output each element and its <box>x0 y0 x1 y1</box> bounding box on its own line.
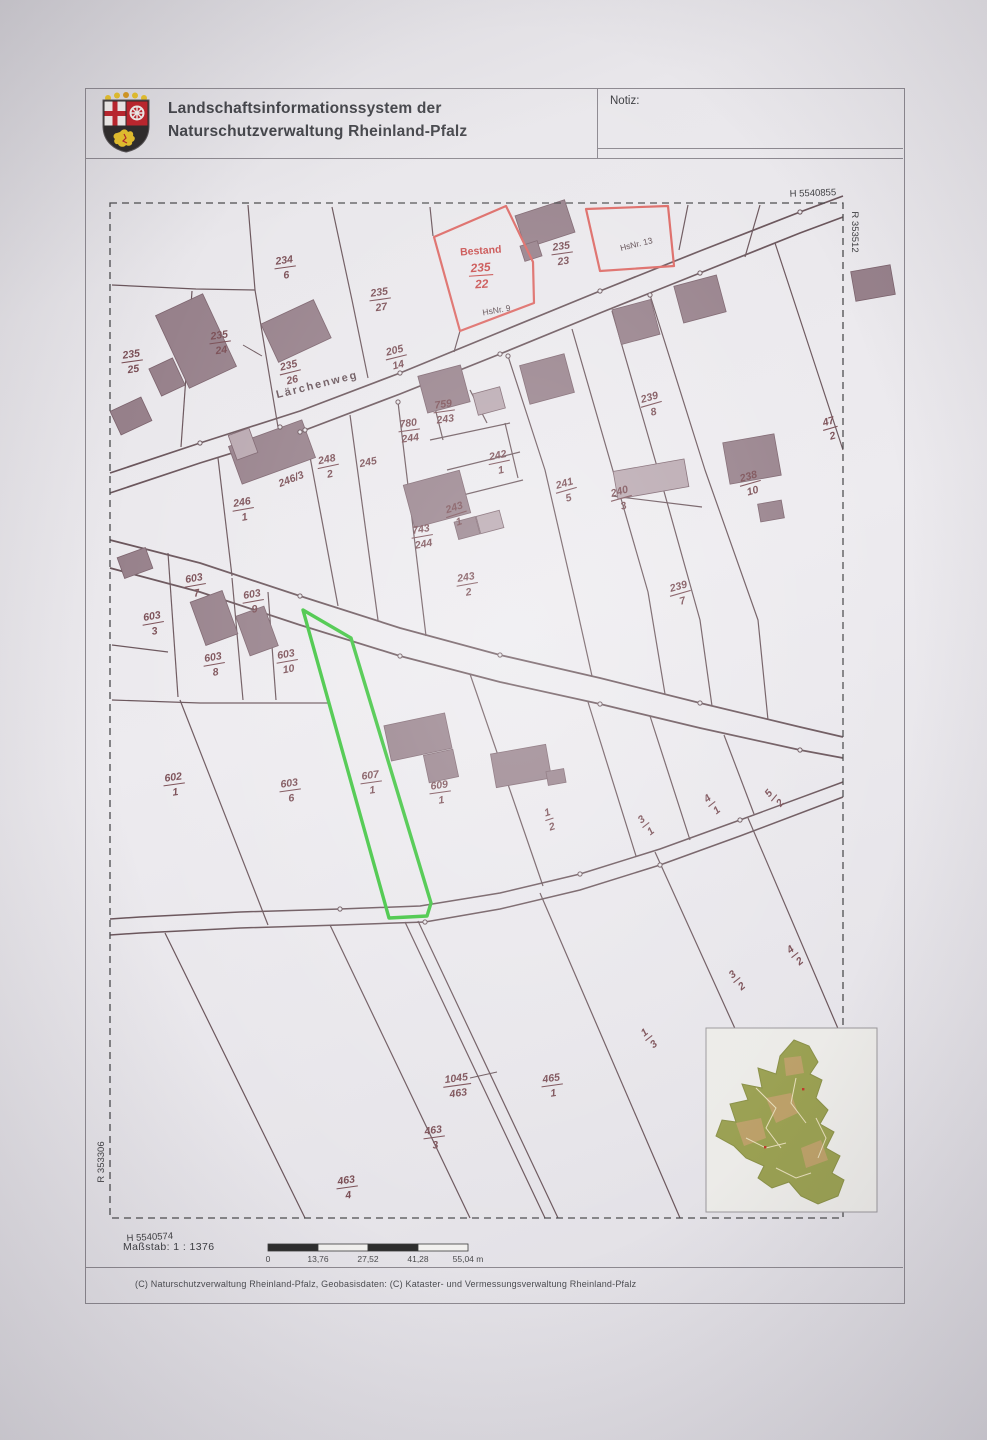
parcel-boundary <box>572 329 665 694</box>
svg-text:602: 602 <box>164 770 183 784</box>
survey-point <box>658 863 662 867</box>
scanned-map-sheet: Landschaftsinformationssystem der Naturs… <box>0 0 987 1440</box>
parcel-boundary <box>218 458 232 576</box>
parcel-label: 12 <box>541 806 557 834</box>
parcel-label: 6036 <box>278 776 303 806</box>
survey-point <box>423 920 427 924</box>
parcel-boundary <box>180 700 268 925</box>
building-footprint <box>520 354 575 405</box>
parcel-boundary <box>112 645 168 652</box>
map-annotation: HsNr. 13 <box>619 235 654 253</box>
survey-point <box>598 702 602 706</box>
parcel-label: 23522 <box>468 260 494 292</box>
svg-text:8: 8 <box>212 666 220 679</box>
parcel-label: 32 <box>726 967 749 994</box>
svg-text:759: 759 <box>434 397 453 411</box>
svg-text:1: 1 <box>543 806 552 819</box>
red-highlight-parcel <box>586 206 674 271</box>
scale-tick-label: 0 <box>266 1254 271 1264</box>
scale-tick-label: 27,52 <box>357 1254 379 1264</box>
survey-point <box>303 428 307 432</box>
parcel-boundary <box>650 295 768 720</box>
parcel-label: 2461 <box>230 495 256 525</box>
parcel-label: 245 <box>357 455 378 471</box>
svg-text:235: 235 <box>209 328 229 342</box>
parcel-boundary <box>650 716 690 840</box>
svg-text:2: 2 <box>735 980 748 994</box>
svg-text:9: 9 <box>251 603 259 616</box>
parcel-label: 4634 <box>335 1173 360 1203</box>
scale-tick-label: 55,04 m <box>453 1254 484 1264</box>
svg-text:235: 235 <box>369 285 389 299</box>
parcel-boundary <box>405 922 545 1218</box>
parcel-label: 2482 <box>315 452 342 483</box>
parcel-label: 2397 <box>666 578 694 610</box>
parcel-boundary <box>724 735 754 814</box>
svg-text:3: 3 <box>636 813 648 826</box>
parcel-label: 13 <box>638 1025 661 1052</box>
parcel-boundary <box>430 207 433 236</box>
svg-text:1: 1 <box>438 794 446 807</box>
frame-coordinate-label: H 5540855 <box>789 187 836 200</box>
parcel-boundary <box>168 553 178 697</box>
survey-point <box>798 748 802 752</box>
parcel-label: 23527 <box>368 285 393 315</box>
parcel-boundary <box>243 345 262 356</box>
svg-text:235: 235 <box>551 239 571 253</box>
svg-text:10: 10 <box>745 484 760 499</box>
svg-text:463: 463 <box>448 1086 468 1100</box>
svg-text:2: 2 <box>325 468 334 481</box>
parcel-boundary <box>679 205 688 250</box>
survey-point <box>648 293 652 297</box>
building-footprint <box>490 744 551 787</box>
svg-text:609: 609 <box>430 778 449 792</box>
svg-text:6: 6 <box>288 792 296 805</box>
svg-text:465: 465 <box>541 1071 561 1085</box>
parcel-boundary <box>447 452 520 470</box>
survey-point <box>738 818 742 822</box>
parcel-label: 6071 <box>359 768 384 798</box>
parcel-boundary <box>112 285 255 290</box>
parcel-label: 60310 <box>274 647 300 677</box>
svg-text:245: 245 <box>357 455 378 471</box>
svg-text:1: 1 <box>369 784 377 797</box>
svg-text:27: 27 <box>374 300 389 314</box>
survey-point <box>198 441 202 445</box>
svg-text:603: 603 <box>242 587 261 602</box>
parcel-boundary <box>110 797 843 935</box>
scale-tick-label: 13,76 <box>307 1254 329 1264</box>
parcel-label: 23525 <box>120 347 145 377</box>
svg-text:243: 243 <box>435 412 455 426</box>
svg-text:244: 244 <box>400 431 420 445</box>
parcel-label: 246/3 <box>276 469 306 490</box>
svg-text:3: 3 <box>432 1139 440 1152</box>
svg-text:24: 24 <box>214 344 228 358</box>
scale-tick-label: 41,28 <box>407 1254 429 1264</box>
svg-text:603: 603 <box>280 776 299 790</box>
parcel-label: 31 <box>635 812 658 839</box>
svg-text:2: 2 <box>546 820 556 834</box>
survey-point <box>396 400 400 404</box>
svg-text:603: 603 <box>142 609 161 624</box>
svg-text:25: 25 <box>126 363 140 377</box>
survey-point <box>398 371 402 375</box>
svg-text:4: 4 <box>344 1189 353 1202</box>
parcel-label: 1045463 <box>442 1071 474 1102</box>
svg-text:780: 780 <box>399 416 418 430</box>
map-annotation: Bestand <box>460 244 502 259</box>
parcel-label: 472 <box>820 414 842 444</box>
survey-point <box>298 430 302 434</box>
svg-text:2: 2 <box>793 955 806 969</box>
parcel-boundary <box>350 415 378 620</box>
parcel-boundary <box>248 205 278 427</box>
svg-text:23: 23 <box>556 255 570 269</box>
survey-point <box>506 354 510 358</box>
building-footprint <box>546 769 566 786</box>
building-footprint <box>758 500 785 522</box>
svg-text:603: 603 <box>203 650 222 665</box>
parcel-boundary <box>508 356 592 676</box>
svg-text:463: 463 <box>423 1123 443 1137</box>
svg-text:7: 7 <box>678 594 688 607</box>
green-highlight-parcel <box>303 610 431 918</box>
svg-text:463: 463 <box>336 1173 356 1187</box>
svg-text:2: 2 <box>773 797 787 810</box>
building-footprint <box>110 397 152 435</box>
parcel-label: 6037 <box>182 571 208 601</box>
svg-text:603: 603 <box>184 571 203 586</box>
parcel-label: 6021 <box>162 770 187 800</box>
svg-text:246/3: 246/3 <box>276 469 306 490</box>
frame-coordinate-label: R 353306 <box>96 1141 107 1182</box>
svg-text:22: 22 <box>474 277 490 292</box>
parcel-label: 20514 <box>383 342 410 373</box>
survey-point <box>698 701 702 705</box>
cadastral-map: 2346235272352223523235242352523526205147… <box>0 0 987 1440</box>
parcel-boundary <box>505 423 518 478</box>
parcel-label: 2432 <box>454 570 480 600</box>
parcel-label: 6033 <box>140 609 166 639</box>
svg-text:235: 235 <box>121 347 141 361</box>
survey-point <box>798 210 802 214</box>
building-footprint <box>851 265 896 301</box>
svg-text:2: 2 <box>827 430 837 443</box>
svg-text:1: 1 <box>241 511 249 524</box>
frame-coordinate-label: R 353512 <box>849 211 860 252</box>
svg-text:603: 603 <box>276 647 295 662</box>
parcel-label: 4651 <box>540 1071 565 1101</box>
svg-text:3: 3 <box>648 1038 660 1051</box>
building-footprint <box>423 749 458 783</box>
building-footprint <box>261 300 331 363</box>
parcel-boundary <box>418 921 558 1218</box>
survey-point <box>498 653 502 657</box>
svg-text:5: 5 <box>762 787 775 799</box>
parcel-label: 2415 <box>552 475 580 507</box>
survey-point <box>598 289 602 293</box>
parcel-label: 2346 <box>273 253 298 283</box>
map-annotation: HsNr. 9 <box>482 303 512 318</box>
parcel-boundary <box>588 702 636 856</box>
svg-text:1: 1 <box>172 786 180 799</box>
svg-text:3: 3 <box>727 968 739 981</box>
svg-text:1: 1 <box>645 825 657 838</box>
building-footprint <box>473 387 506 415</box>
svg-text:244: 244 <box>413 537 433 552</box>
parcel-boundary <box>112 700 329 703</box>
overview-inset-map <box>706 1028 877 1212</box>
svg-text:1: 1 <box>550 1087 558 1100</box>
svg-text:14: 14 <box>391 358 405 373</box>
survey-point <box>338 907 342 911</box>
parcel-label: 23523 <box>550 239 575 269</box>
building-footprint <box>476 510 504 534</box>
parcel-label: 780244 <box>397 416 422 446</box>
svg-text:1: 1 <box>639 1026 651 1039</box>
survey-point <box>398 654 402 658</box>
parcel-label: 743244 <box>409 522 435 552</box>
survey-point <box>278 425 282 429</box>
parcel-boundary <box>540 893 680 1218</box>
svg-text:3: 3 <box>151 625 159 638</box>
parcel-label: 41 <box>701 791 724 818</box>
survey-point <box>498 352 502 356</box>
parcel-boundary <box>470 1072 497 1078</box>
svg-text:10: 10 <box>282 662 296 676</box>
svg-text:743: 743 <box>411 522 430 537</box>
parcel-label: 2421 <box>486 448 513 479</box>
svg-text:3: 3 <box>619 500 628 513</box>
parcel-label: 6091 <box>428 778 453 808</box>
copyright-text: (C) Naturschutzverwaltung Rheinland-Pfal… <box>135 1279 636 1289</box>
svg-text:239: 239 <box>667 578 688 595</box>
svg-text:2: 2 <box>464 586 473 599</box>
svg-text:1: 1 <box>497 464 505 477</box>
svg-text:8: 8 <box>649 406 658 419</box>
svg-text:241: 241 <box>553 475 574 492</box>
svg-text:7: 7 <box>193 587 202 600</box>
survey-point <box>298 594 302 598</box>
parcel-boundary <box>232 578 243 700</box>
svg-text:5: 5 <box>564 492 573 505</box>
parcel-label: 2398 <box>637 389 665 421</box>
parcel-boundary <box>165 933 305 1218</box>
scale-label: Maßstab: 1 : 1376 <box>123 1241 214 1253</box>
survey-point <box>578 872 582 876</box>
building-footprint <box>117 548 153 579</box>
scale-bar: 013,7627,5241,2855,04 m <box>266 1244 484 1264</box>
svg-text:239: 239 <box>638 389 659 406</box>
svg-text:6: 6 <box>283 269 291 282</box>
building-footprint <box>674 275 726 323</box>
svg-text:234: 234 <box>274 253 294 267</box>
svg-text:235: 235 <box>469 260 491 275</box>
parcel-boundary <box>332 207 368 378</box>
parcel-label: 6038 <box>201 650 227 680</box>
parcel-label: 4633 <box>422 1123 447 1153</box>
survey-point <box>698 271 702 275</box>
svg-text:1: 1 <box>711 804 723 817</box>
svg-text:607: 607 <box>361 768 381 782</box>
